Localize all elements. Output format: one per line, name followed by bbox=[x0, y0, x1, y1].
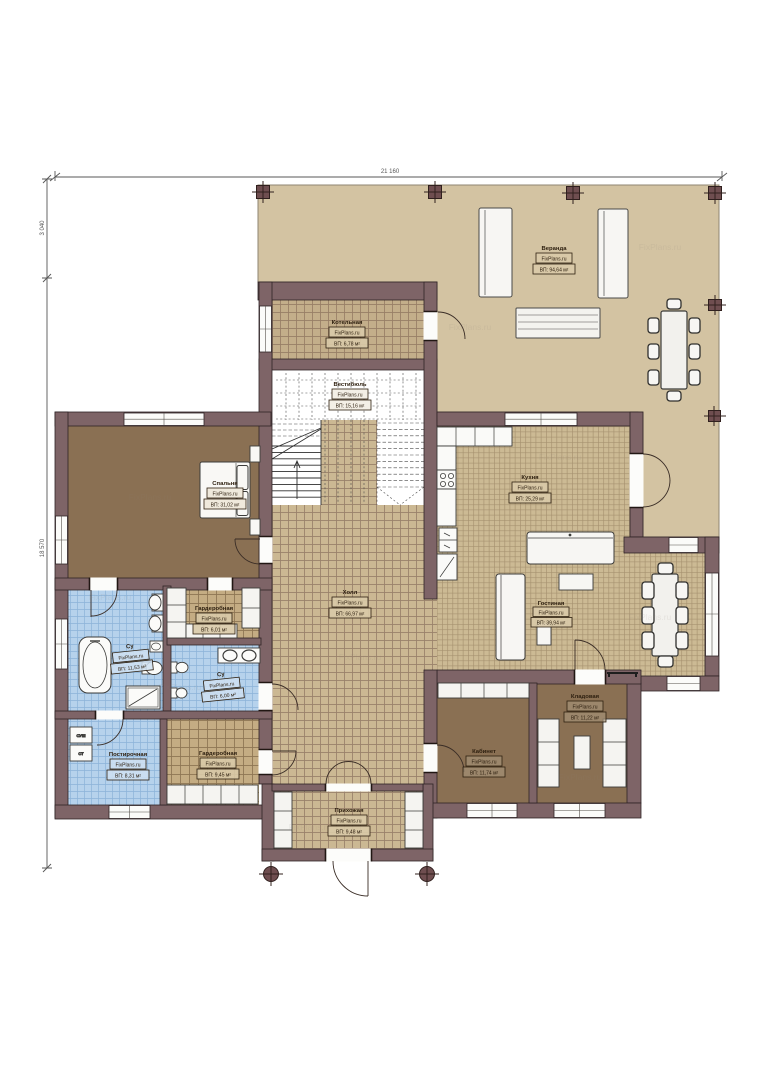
svg-text:ВП: 11,74 м²: ВП: 11,74 м² bbox=[470, 771, 499, 777]
svg-text:FixPlans.ru: FixPlans.ru bbox=[337, 393, 362, 399]
svg-text:FixPlans.ru: FixPlans.ru bbox=[201, 617, 226, 623]
svg-text:ВП: 9,48 м²: ВП: 9,48 м² bbox=[336, 830, 362, 836]
svg-text:Веранда: Веранда bbox=[542, 246, 568, 252]
svg-text:FixPlans.ru: FixPlans.ru bbox=[449, 322, 492, 332]
svg-text:FixPlans.ru: FixPlans.ru bbox=[115, 763, 140, 769]
svg-text:FixPlans.ru: FixPlans.ru bbox=[205, 762, 230, 768]
svg-text:FixPlans.ru: FixPlans.ru bbox=[538, 611, 563, 617]
svg-text:FixPlans.ru: FixPlans.ru bbox=[572, 705, 597, 711]
svg-text:FixPlans.ru: FixPlans.ru bbox=[517, 486, 542, 492]
svg-text:FixPlans.ru: FixPlans.ru bbox=[159, 682, 202, 692]
svg-text:FixPlans.ru: FixPlans.ru bbox=[339, 652, 382, 662]
svg-text:ВП: 39,94 м²: ВП: 39,94 м² bbox=[537, 621, 566, 627]
svg-text:Котельная: Котельная bbox=[332, 320, 363, 326]
svg-text:ВП: 66,97 м²: ВП: 66,97 м² bbox=[336, 612, 365, 618]
svg-text:Кабинет: Кабинет bbox=[472, 748, 496, 755]
svg-text:FixPlans.ru: FixPlans.ru bbox=[539, 452, 582, 462]
svg-text:Вестибюль: Вестибюль bbox=[333, 381, 366, 388]
svg-text:Прихожая: Прихожая bbox=[334, 808, 364, 814]
svg-text:ВП: 11,22 м²: ВП: 11,22 м² bbox=[571, 716, 600, 722]
svg-text:Су: Су bbox=[126, 644, 135, 651]
svg-text:СТ: СТ bbox=[78, 751, 84, 756]
svg-text:FixPlans.ru: FixPlans.ru bbox=[129, 492, 172, 502]
svg-text:ВП: 25,29 м²: ВП: 25,29 м² bbox=[516, 497, 545, 503]
svg-text:Гардеробная: Гардеробная bbox=[195, 605, 234, 612]
svg-text:Спальня: Спальня bbox=[212, 481, 238, 487]
svg-text:FixPlans.ru: FixPlans.ru bbox=[289, 822, 332, 832]
svg-text:FixPlans.ru: FixPlans.ru bbox=[541, 257, 566, 263]
svg-text:FixPlans.ru: FixPlans.ru bbox=[639, 242, 682, 252]
svg-text:ВП: 8,31 м²: ВП: 8,31 м² bbox=[115, 774, 141, 780]
svg-text:ВП: 94,64 м²: ВП: 94,64 м² bbox=[540, 268, 569, 274]
svg-text:3 040: 3 040 bbox=[40, 220, 46, 236]
svg-text:Су: Су bbox=[217, 672, 226, 679]
svg-text:Постирочная: Постирочная bbox=[109, 752, 148, 758]
svg-text:ВП: 6,01 м²: ВП: 6,01 м² bbox=[201, 628, 227, 634]
svg-text:Кладовая: Кладовая bbox=[571, 694, 600, 700]
svg-text:СУШ: СУШ bbox=[77, 733, 86, 738]
svg-text:FixPlans.ru: FixPlans.ru bbox=[629, 612, 672, 622]
svg-text:FixPlans.ru: FixPlans.ru bbox=[89, 592, 132, 602]
svg-text:FixPlans.ru: FixPlans.ru bbox=[334, 331, 359, 337]
svg-text:Холл: Холл bbox=[343, 590, 358, 596]
svg-text:FixPlans.ru: FixPlans.ru bbox=[471, 760, 496, 766]
svg-text:Гостиная: Гостиная bbox=[538, 601, 565, 607]
svg-text:21 160: 21 160 bbox=[381, 169, 400, 175]
svg-text:ВП: 15,16 м²: ВП: 15,16 м² bbox=[336, 404, 365, 410]
svg-text:FixPlans.ru: FixPlans.ru bbox=[337, 601, 362, 607]
svg-text:FixPlans.ru: FixPlans.ru bbox=[212, 492, 237, 498]
svg-text:ВП: 9,45 м²: ВП: 9,45 м² bbox=[205, 773, 231, 779]
svg-text:FixPlans.ru: FixPlans.ru bbox=[559, 772, 602, 782]
svg-text:Кухня: Кухня bbox=[521, 475, 539, 481]
svg-text:Гардеробная: Гардеробная bbox=[199, 750, 238, 757]
svg-text:ВП: 6,78 м²: ВП: 6,78 м² bbox=[334, 342, 360, 348]
svg-text:18 570: 18 570 bbox=[40, 538, 46, 557]
svg-text:FixPlans.ru: FixPlans.ru bbox=[336, 819, 361, 825]
svg-text:ВП: 31,02 м²: ВП: 31,02 м² bbox=[211, 503, 240, 509]
